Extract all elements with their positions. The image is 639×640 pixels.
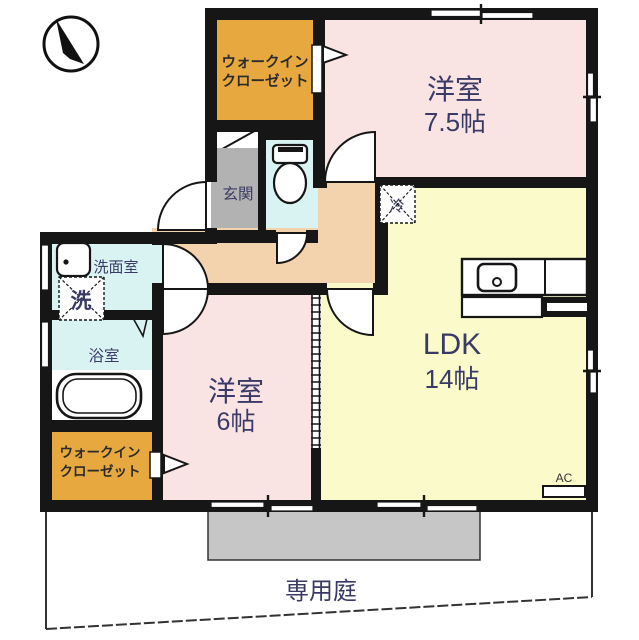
wic-bottom-label-line1: ウォークイン xyxy=(60,445,141,460)
sink-icon xyxy=(57,243,90,276)
western-6-size: 6帖 xyxy=(217,408,256,436)
north-arrow-icon xyxy=(44,17,98,71)
ldk-size: 14帖 xyxy=(425,364,480,394)
western-6-label: 洋室 xyxy=(208,376,264,407)
fridge-label: 冷 xyxy=(389,198,404,215)
ac-label: AC xyxy=(556,471,573,485)
bathtub-icon xyxy=(57,374,141,418)
toilet-icon xyxy=(273,145,307,203)
western-7-5-label: 洋室 xyxy=(427,74,483,105)
garden-label: 専用庭 xyxy=(285,578,357,605)
wic-bottom-label-line2: クローゼット xyxy=(60,463,141,479)
wic-top-door xyxy=(312,45,322,93)
bathroom-label: 浴室 xyxy=(88,347,119,365)
washroom-label: 洗面室 xyxy=(93,259,138,276)
floor-plan: ウォークイン クローゼット 洋室 7.5帖 LDK 14帖 洋室 6帖 玄関 洗… xyxy=(0,0,639,640)
ac-unit xyxy=(543,486,585,497)
washer-label: 洗 xyxy=(71,290,92,313)
front-door-swing xyxy=(158,182,206,230)
sliding-partition xyxy=(311,295,321,502)
terrace xyxy=(208,506,480,560)
wic-bottom-door xyxy=(150,452,161,478)
genkan-label: 玄関 xyxy=(222,185,253,203)
ldk-label: LDK xyxy=(423,328,481,361)
wic-top-label-line2: クローゼット xyxy=(222,72,309,90)
wic-top-label-line1: ウォークイン xyxy=(222,54,309,71)
kitchen-counter xyxy=(462,259,587,317)
western-7-5-size: 7.5帖 xyxy=(424,107,486,137)
floor-plan-drawing: ウォークイン クローゼット 洋室 7.5帖 LDK 14帖 洋室 6帖 玄関 洗… xyxy=(0,0,639,640)
